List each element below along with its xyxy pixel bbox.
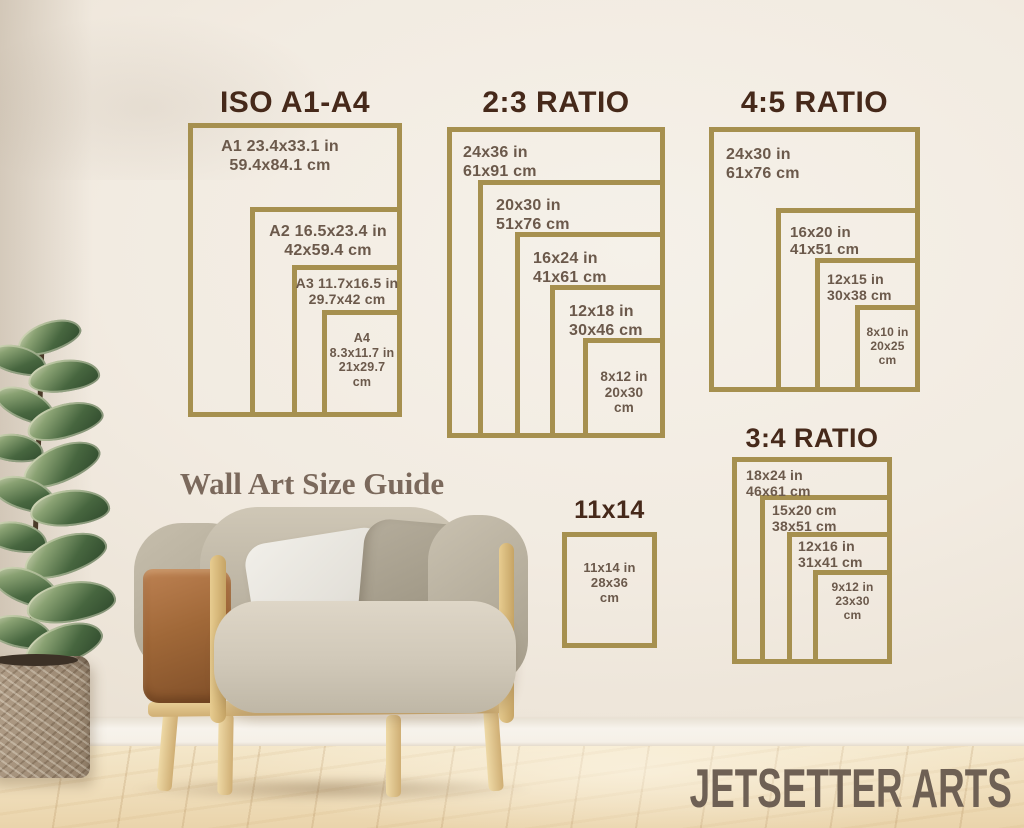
size-label-a2: A2 16.5x23.4 in42x59.4 cm — [254, 223, 402, 260]
size-label-a1: A1 23.4x33.1 in59.4x84.1 cm — [202, 138, 358, 175]
chair-seat-cushion — [214, 601, 516, 713]
size-label-18x24: 18x24 in46x61 cm — [746, 467, 811, 499]
size-label-16x24: 16x24 in41x61 cm — [533, 250, 607, 287]
size-chart-3-4-ratio: 3:4 RATIO 18x24 in46x61 cm 15x20 cm38x51… — [732, 423, 892, 665]
chart-title: 2:3 RATIO — [447, 86, 665, 120]
size-label-20x30: 20x30 in51x76 cm — [496, 197, 570, 234]
chart-title: 3:4 RATIO — [732, 423, 892, 454]
size-label-24x36: 24x36 in61x91 cm — [463, 144, 537, 181]
planter-opening — [0, 654, 78, 666]
chair-floor-shadow — [130, 775, 534, 803]
chart-title: 11x14 — [560, 496, 659, 525]
chart-title: 4:5 RATIO — [709, 86, 920, 120]
chair-leg — [217, 713, 233, 795]
size-label-12x18: 12x18 in30x46 cm — [569, 303, 643, 340]
size-label-a3: A3 11.7x16.5 in29.7x42 cm — [292, 275, 402, 307]
nested-frames: 24x30 in61x76 cm 16x20 in41x51 cm 12x15 … — [709, 127, 920, 392]
woven-planter-basket — [0, 656, 90, 778]
nested-frames: A1 23.4x33.1 in59.4x84.1 cm A2 16.5x23.4… — [188, 123, 402, 417]
chart-title: ISO A1-A4 — [188, 86, 402, 120]
nested-frames: 18x24 in46x61 cm 15x20 cm38x51 cm 12x16 … — [732, 457, 892, 664]
size-label-11x14: 11x14 in28x36cm — [562, 560, 657, 605]
brand-logo: JETSETTER ARTS — [690, 756, 1012, 820]
size-label-9x12: 9x12 in23x30cm — [813, 581, 892, 623]
size-chart-11x14: 11x14 11x14 in28x36cm — [560, 496, 659, 649]
armchair — [138, 503, 522, 795]
nested-frames: 24x36 in61x91 cm 20x30 in51x76 cm 16x24 … — [447, 127, 665, 438]
nested-frames: 11x14 in28x36cm — [562, 532, 657, 648]
size-label-12x16: 12x16 in31x41 cm — [798, 538, 863, 570]
guide-heading: Wall Art Size Guide — [166, 466, 458, 502]
potted-plant — [0, 318, 136, 668]
size-chart-4-5-ratio: 4:5 RATIO 24x30 in61x76 cm 16x20 in41x51… — [709, 86, 920, 393]
chair-leg — [386, 715, 401, 797]
size-label-24x30: 24x30 in61x76 cm — [726, 146, 800, 183]
size-chart-iso-a1-a4: ISO A1-A4 A1 23.4x33.1 in59.4x84.1 cm A2… — [188, 86, 402, 418]
size-label-12x15: 12x15 in30x38 cm — [827, 271, 892, 303]
wall-art-size-guide-scene: ISO A1-A4 A1 23.4x33.1 in59.4x84.1 cm A2… — [0, 0, 1024, 828]
chair-leg — [156, 709, 178, 792]
size-label-a4: A48.3x11.7 in21x29.7cm — [322, 331, 402, 389]
size-label-8x12: 8x12 in20x30cm — [583, 369, 665, 416]
size-label-16x20: 16x20 in41x51 cm — [790, 224, 859, 259]
size-label-15x20: 15x20 cm38x51 cm — [772, 502, 837, 534]
size-label-8x10: 8x10 in20x25cm — [855, 326, 920, 368]
size-chart-2-3-ratio: 2:3 RATIO 24x36 in61x91 cm 20x30 in51x76… — [447, 86, 665, 439]
